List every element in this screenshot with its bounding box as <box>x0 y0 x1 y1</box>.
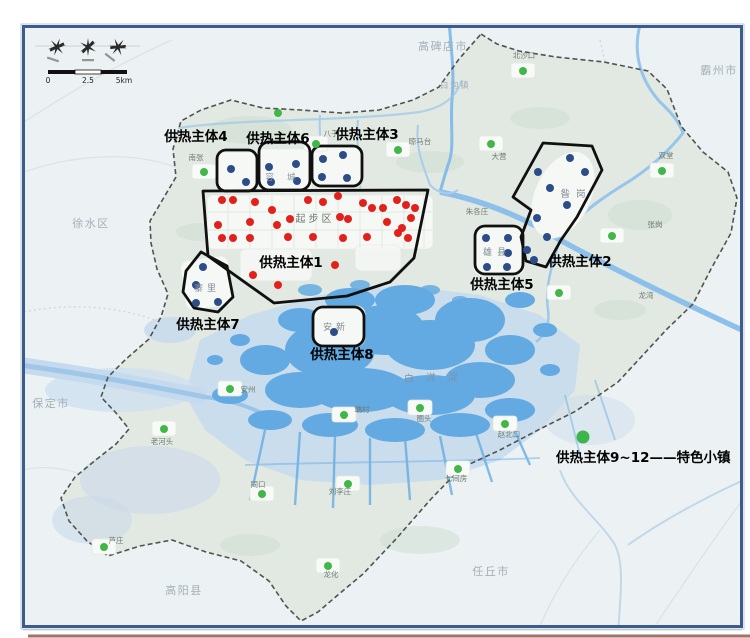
zone-1-source-dot <box>404 234 412 242</box>
special-town-dot <box>100 543 108 551</box>
zone-2-source-dot <box>543 233 551 241</box>
special-town-dot <box>226 385 234 393</box>
town-label: 赵北口 <box>498 429 521 439</box>
zone-1-source-dot <box>246 234 254 242</box>
area-label: 昝岗 <box>560 188 591 200</box>
zone-7-source-dot <box>192 299 200 307</box>
zone-2-source-dot <box>546 184 554 192</box>
zone-1-source-dot <box>229 234 237 242</box>
area-label: 寨里 <box>194 282 220 294</box>
zone-1-source-dot <box>273 221 281 229</box>
town-label: 南张 <box>189 152 204 162</box>
legend-green-dot <box>577 431 590 444</box>
town-label: 端村 <box>355 404 370 414</box>
zone-5-source-dot <box>504 234 512 242</box>
zone-2-source-dot <box>534 168 542 176</box>
zone-4-source-dot <box>227 165 235 173</box>
special-town-dot <box>274 109 282 117</box>
zone-1-source-dot <box>331 261 339 269</box>
city-label: 保定市 <box>32 396 70 410</box>
zone-2-source-dot <box>530 256 538 264</box>
area-label: 起步区 <box>296 213 335 225</box>
special-town-dot <box>340 411 348 419</box>
area-label: 安新 <box>323 321 349 333</box>
town-label: 张岗 <box>648 220 663 229</box>
zone-1-source-dot <box>411 204 419 212</box>
zone-1-source-dot <box>249 271 257 279</box>
town-label: 晾马台 <box>409 136 432 146</box>
zone-label-7: 供热主体7 <box>175 316 239 333</box>
zone-2-source-dot <box>523 246 531 254</box>
map-canvas: 北沙口晾马台八于南张大营双堂张岗龙湾朱各庄老河头安州同口端村刘李庄圈头赵北口七间… <box>0 0 750 638</box>
zone-1-source-dot <box>319 198 327 206</box>
zone-6-source-dot <box>265 163 273 171</box>
legend-text: 供热主体9~12——特色小镇 <box>555 449 731 466</box>
special-town-dot <box>658 167 666 175</box>
special-town-dot <box>324 562 332 570</box>
zone-1-source-dot <box>359 199 367 207</box>
zone-1-source-dot <box>363 233 371 241</box>
special-town-dot <box>416 404 424 412</box>
divider-line <box>23 629 742 631</box>
zone-1-source-dot <box>246 218 254 226</box>
zone-label-5: 供热主体5 <box>469 276 533 293</box>
special-town-dot <box>555 289 563 297</box>
zone-1-source-dot <box>309 233 317 241</box>
special-town-dot <box>519 67 527 75</box>
town-label: 老河头 <box>151 436 174 446</box>
zone-label-3: 供热主体3 <box>334 126 398 143</box>
town-label: 大营 <box>492 151 507 161</box>
city-label: 任丘市 <box>472 564 510 578</box>
zone-1-source-dot <box>344 215 352 223</box>
city-label: 徐水区 <box>72 216 110 230</box>
special-town-dot <box>394 146 402 154</box>
zone-1-source-dot <box>383 218 391 226</box>
zone-7-source-dot <box>199 263 207 271</box>
zone-label-2: 供热主体2 <box>547 253 611 270</box>
zone-2-source-dot <box>566 154 574 162</box>
table-edge-line <box>28 635 750 638</box>
town-label: 龙湾 <box>639 290 654 300</box>
special-town-dot <box>312 140 320 148</box>
town-label: 朱各庄 <box>466 206 489 216</box>
zone-7-source-dot <box>214 298 222 306</box>
zone-label-8: 供热主体8 <box>309 346 373 363</box>
zone-1-source-dot <box>214 221 222 229</box>
zone-1-source-dot <box>304 196 312 204</box>
zone-1-source-dot <box>334 192 342 200</box>
town-label: 七间房 <box>445 473 468 483</box>
city-label: 高碑店市 <box>418 39 468 53</box>
special-town-dot <box>160 425 168 433</box>
zone-3-source-dot <box>339 151 347 159</box>
area-label: 容城 <box>265 172 308 183</box>
zone-1-source-dot <box>218 196 226 204</box>
zone-4-source-dot <box>242 178 250 186</box>
zone-1-source-dot <box>218 234 226 242</box>
zone-5-source-dot <box>503 263 511 271</box>
town-label: 龙化 <box>324 569 339 579</box>
town-label: 刘李庄 <box>329 486 352 496</box>
special-town-dot <box>501 420 509 428</box>
zone-1-source-dot <box>336 213 344 221</box>
zone-label-6: 供热主体6 <box>245 130 309 147</box>
zone-1-source-dot <box>368 204 376 212</box>
zone-1-source-dot <box>251 198 259 206</box>
zone-1-source-dot <box>402 201 410 209</box>
zone-1-source-dot <box>379 204 387 212</box>
zone-2-source-dot <box>581 168 589 176</box>
zone-2-source-dot <box>533 214 541 222</box>
zone-5-source-dot <box>483 263 491 271</box>
special-town-dot <box>454 465 462 473</box>
zone-label-4: 供热主体4 <box>163 128 227 145</box>
city-label: 霸州市 <box>700 63 738 77</box>
zone-1-source-dot <box>407 214 415 222</box>
zone-3-source-dot <box>319 155 327 163</box>
scale-label-max: 5km <box>116 76 132 85</box>
planning-map-figure: 北沙口晾马台八于南张大营双堂张岗龙湾朱各庄老河头安州同口端村刘李庄圈头赵北口七间… <box>0 0 750 638</box>
zone-label-1: 供热主体1 <box>258 254 322 271</box>
area-label: 雄县 <box>483 246 511 258</box>
special-town-dot <box>487 140 495 148</box>
zone-1-source-dot <box>229 196 237 204</box>
scale-label-mid: 2.5 <box>82 76 94 85</box>
town-label: 同口 <box>251 480 266 489</box>
special-town-dot <box>608 232 616 240</box>
zone-1-source-dot <box>274 281 282 289</box>
zone-1-source-dot <box>268 206 276 214</box>
town-label: 圈头 <box>417 413 432 423</box>
zone-1-source-dot <box>339 234 347 242</box>
zone-1-source-dot <box>286 215 294 223</box>
city-label: 白沟镇 <box>440 80 470 91</box>
town-label: 北沙口 <box>513 51 536 60</box>
town-label: 芦庄 <box>109 535 124 545</box>
scale-label-0: 0 <box>46 76 51 85</box>
city-label: 高阳县 <box>165 583 203 597</box>
zone-3-source-dot <box>343 174 351 182</box>
zone-2-source-dot <box>563 201 571 209</box>
special-town-dot <box>200 168 208 176</box>
zone-1-source-dot <box>284 233 292 241</box>
zone-1-source-dot <box>393 196 401 204</box>
zone-3-source-dot <box>318 173 326 181</box>
town-label: 双堂 <box>659 150 674 160</box>
zone-5-source-dot <box>482 234 490 242</box>
special-town-dot <box>258 490 266 498</box>
zone-6-source-dot <box>292 160 300 168</box>
town-label: 安州 <box>241 384 256 394</box>
zone-1-source-dot <box>394 229 402 237</box>
